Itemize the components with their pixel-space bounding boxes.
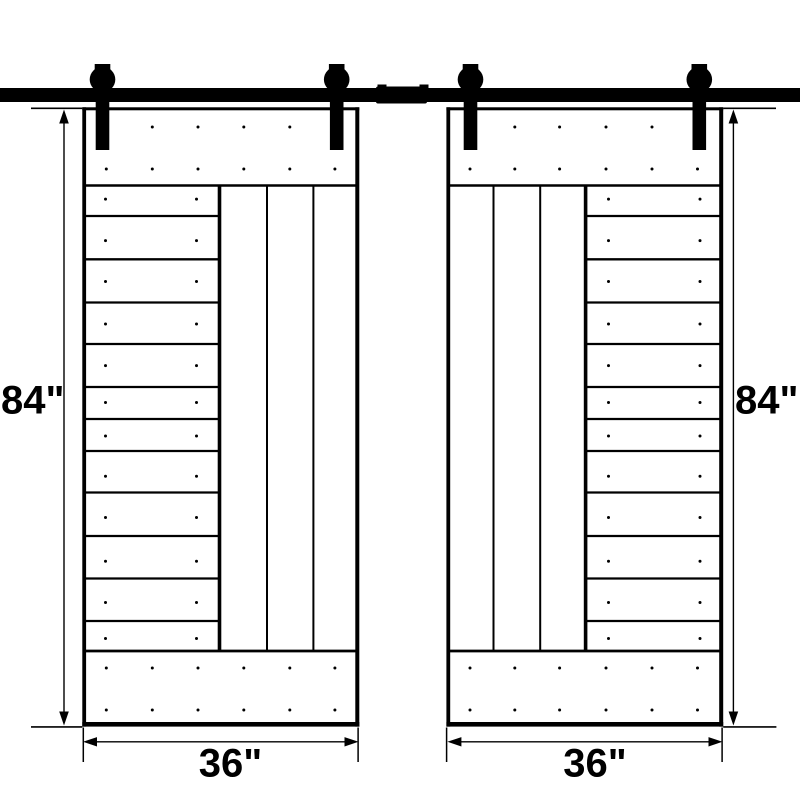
svg-text:36": 36" bbox=[563, 742, 626, 786]
svg-text:84": 84" bbox=[735, 379, 798, 423]
svg-text:84": 84" bbox=[1, 379, 64, 423]
svg-text:36": 36" bbox=[199, 742, 262, 786]
